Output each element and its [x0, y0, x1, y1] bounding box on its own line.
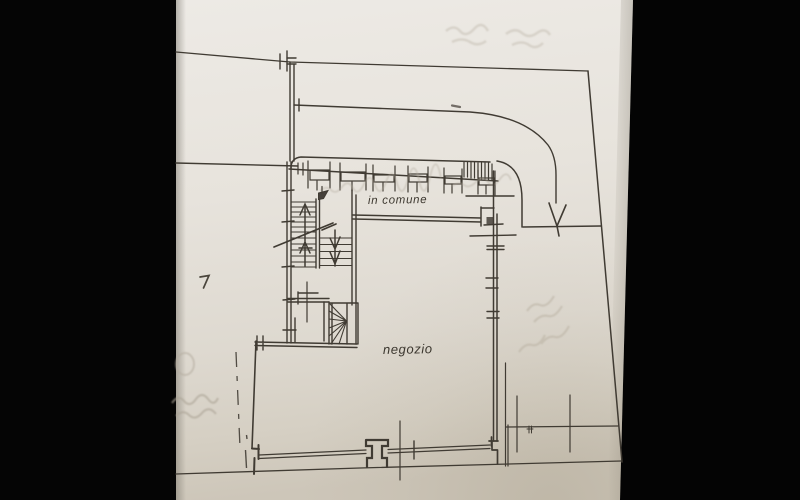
svg-text:in comune: in comune — [368, 194, 428, 207]
svg-text:negozio: negozio — [383, 341, 433, 357]
